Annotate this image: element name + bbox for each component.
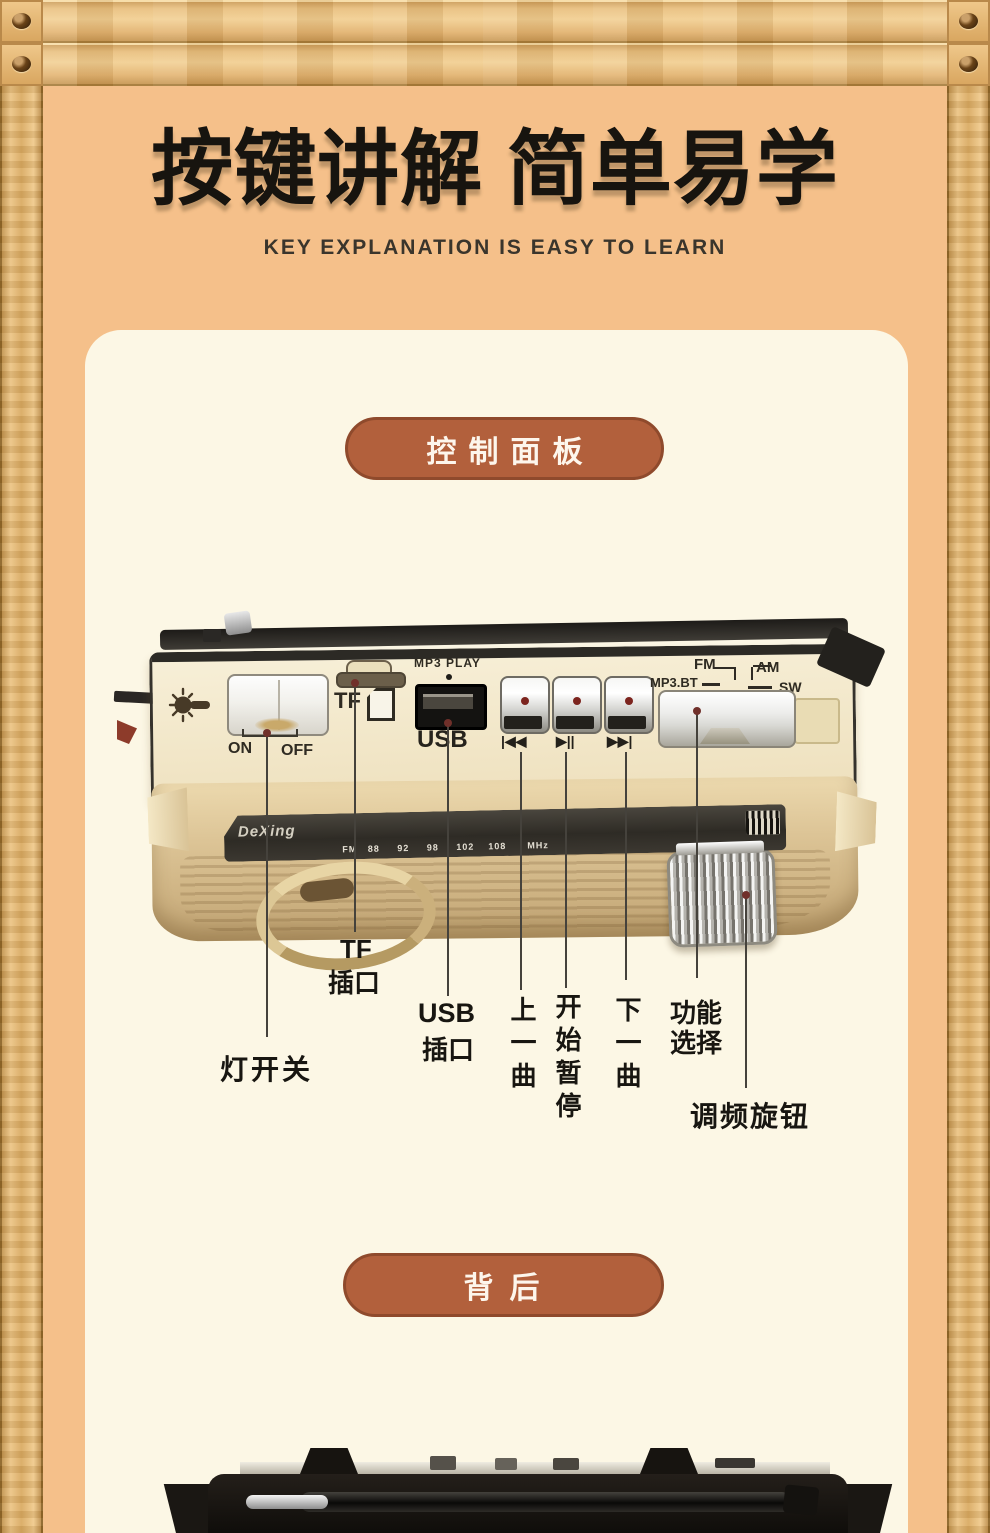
- rivet-icon: [12, 13, 31, 29]
- band-connector-line: [702, 683, 720, 686]
- label-tf-line2: 插口: [328, 963, 380, 1000]
- antenna-hinge: [203, 629, 221, 642]
- label-tf-line1: TF: [340, 934, 372, 965]
- hardware-bit: [553, 1458, 579, 1470]
- dial-pointer-window: [746, 810, 780, 835]
- off-label: OFF: [281, 742, 313, 760]
- play-pause-symbol: ▶||: [556, 733, 575, 750]
- callout-line-light-switch: [266, 737, 268, 1037]
- band-connector-line: [714, 667, 734, 669]
- frame-corner-block: [947, 0, 990, 43]
- hardware-bit: [430, 1456, 456, 1470]
- wood-grain: [947, 86, 990, 1533]
- page-title: 按键讲解 简单易学: [0, 102, 990, 221]
- callout-line-function: [696, 714, 698, 978]
- frame-left-plank: [0, 86, 43, 1533]
- label-light-switch: 灯开关: [220, 1048, 313, 1088]
- label-usb-line1: USB: [418, 998, 475, 1029]
- body-side-tab: [147, 787, 189, 852]
- page-subtitle: KEY EXPLANATION IS EASY TO LEARN: [0, 236, 990, 260]
- band-selector-slot: [794, 698, 840, 744]
- button-band: [556, 716, 594, 729]
- page: 按键讲解 简单易学 KEY EXPLANATION IS EASY TO LEA…: [0, 0, 990, 1533]
- prev-track-button: [500, 676, 550, 734]
- am-label: AM: [756, 659, 779, 676]
- button-dot: [521, 697, 529, 705]
- lamp-icon: [168, 686, 220, 724]
- back-antenna-rod: [300, 1492, 792, 1512]
- wood-grain: [43, 43, 947, 86]
- fm-label: FM: [694, 656, 716, 673]
- tf-label: TF: [334, 688, 361, 714]
- label-function-line2: 选择: [670, 1023, 722, 1060]
- button-band: [504, 716, 542, 729]
- callout-dot: [263, 729, 271, 737]
- frame-corner-block: [0, 0, 43, 43]
- callout-line-next: [625, 752, 627, 980]
- band-connector-line: [734, 667, 736, 680]
- rivet-icon: [959, 13, 978, 29]
- callout-line-prev: [520, 752, 522, 990]
- callout-dot: [444, 719, 452, 727]
- control-panel-badge: 控制面板: [345, 417, 664, 480]
- usb-label: USB: [417, 726, 468, 754]
- frame-corner-block: [947, 43, 990, 86]
- callout-dot: [351, 679, 359, 687]
- callout-line-play: [565, 752, 567, 988]
- button-dot: [625, 697, 633, 705]
- rivet-icon: [959, 56, 978, 72]
- hardware-bit: [495, 1458, 517, 1470]
- frame-right-plank: [947, 86, 990, 1533]
- next-track-button: [604, 676, 654, 734]
- usb-port-contacts: [423, 694, 473, 709]
- mp3-bt-label: MP3.BT: [650, 675, 698, 690]
- frame-top-plank-1: [43, 0, 947, 43]
- prev-symbol: |◀◀: [501, 733, 526, 750]
- next-symbol: ▶▶|: [607, 733, 632, 750]
- button-dot: [573, 697, 581, 705]
- rivet-icon: [12, 56, 31, 72]
- label-prev-track: 上一曲: [504, 996, 541, 1095]
- on-off-bracket: [296, 729, 298, 737]
- mp3-play-label: MP3 PLAY: [414, 656, 481, 670]
- on-off-bracket: [242, 729, 244, 737]
- callout-dot: [742, 891, 750, 899]
- back-antenna-joint: [783, 1484, 820, 1515]
- wood-grain: [0, 86, 43, 1533]
- callout-line-tf: [354, 686, 356, 932]
- band-connector-line: [751, 667, 753, 680]
- label-next-track: 下一曲: [609, 996, 646, 1095]
- band-connector-line: [753, 665, 771, 667]
- label-tuning-knob: 调频旋钮: [690, 1095, 810, 1135]
- wood-grain: [43, 0, 947, 43]
- sd-card-icon: [367, 688, 395, 721]
- hardware-bit: [715, 1458, 755, 1468]
- indicator-dot: [446, 674, 452, 680]
- light-rocker-switch: [227, 674, 329, 736]
- callout-line-tuning: [745, 898, 747, 1088]
- antenna-tip: [224, 610, 253, 635]
- callout-line-usb: [447, 726, 449, 996]
- tf-card-slot: [336, 672, 406, 688]
- button-band: [608, 716, 646, 729]
- back-badge: 背后: [343, 1253, 664, 1317]
- frame-corner-block: [0, 43, 43, 86]
- label-play-pause: 开始暂停: [549, 993, 586, 1125]
- callout-dot: [693, 707, 701, 715]
- frame-top-plank-2: [43, 43, 947, 86]
- on-label: ON: [228, 740, 252, 758]
- label-usb-line2: 插口: [422, 1030, 474, 1067]
- band-connector-line: [748, 686, 772, 689]
- back-antenna-cap: [246, 1495, 328, 1509]
- play-pause-button: [552, 676, 602, 734]
- tuning-knob: [666, 848, 777, 948]
